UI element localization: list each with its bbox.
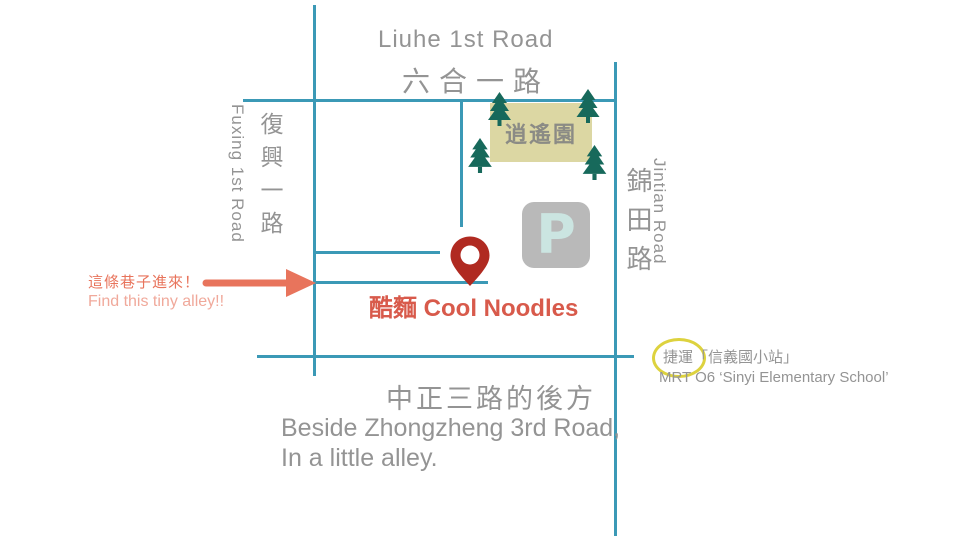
parking-letter: P <box>536 208 576 262</box>
road-line-fuxing <box>313 5 316 376</box>
mrt-station-zh: 捷運「信義國小站」 <box>663 346 798 367</box>
alley-note-zh: 這條巷子進來！ <box>88 271 200 292</box>
map-canvas: 逍遙園 P Liuhe 1st Road 六合一路 Fuxing 1st Roa… <box>0 0 960 540</box>
alley-note-en: Find this tiny alley!! <box>88 293 224 311</box>
zhongzheng-note-en-line2: In a little alley. <box>281 444 438 473</box>
road-label-jintian-en: Jintian Road <box>649 158 669 265</box>
mrt-station-en: MRT O6 ‘Sinyi Elementary School’ <box>659 369 889 386</box>
road-label-fuxing-en: Fuxing 1st Road <box>227 104 247 243</box>
destination-label: 酷麵 Cool Noodles <box>369 288 578 323</box>
zhongzheng-note-zh: 中正三路的後方 <box>386 377 596 416</box>
pine-tree-icon <box>581 145 608 180</box>
pine-tree-icon <box>575 89 601 123</box>
road-label-fuxing-zh: 復興一路 <box>253 112 287 244</box>
road-line-inner-lane <box>314 251 440 254</box>
road-line-zhongzheng <box>257 355 634 358</box>
destination-pin-icon <box>447 235 493 287</box>
road-line-jintian <box>614 62 617 536</box>
pine-tree-icon <box>467 138 493 173</box>
zhongzheng-note-en-line1: Beside Zhongzheng 3rd Road, <box>281 414 620 443</box>
park-label: 逍遙園 <box>505 117 577 149</box>
road-line-park-side-street <box>460 101 463 227</box>
parking-icon: P <box>522 202 590 268</box>
road-label-liuhe-zh: 六合一路 <box>402 60 550 100</box>
road-label-liuhe-en: Liuhe 1st Road <box>378 26 553 54</box>
